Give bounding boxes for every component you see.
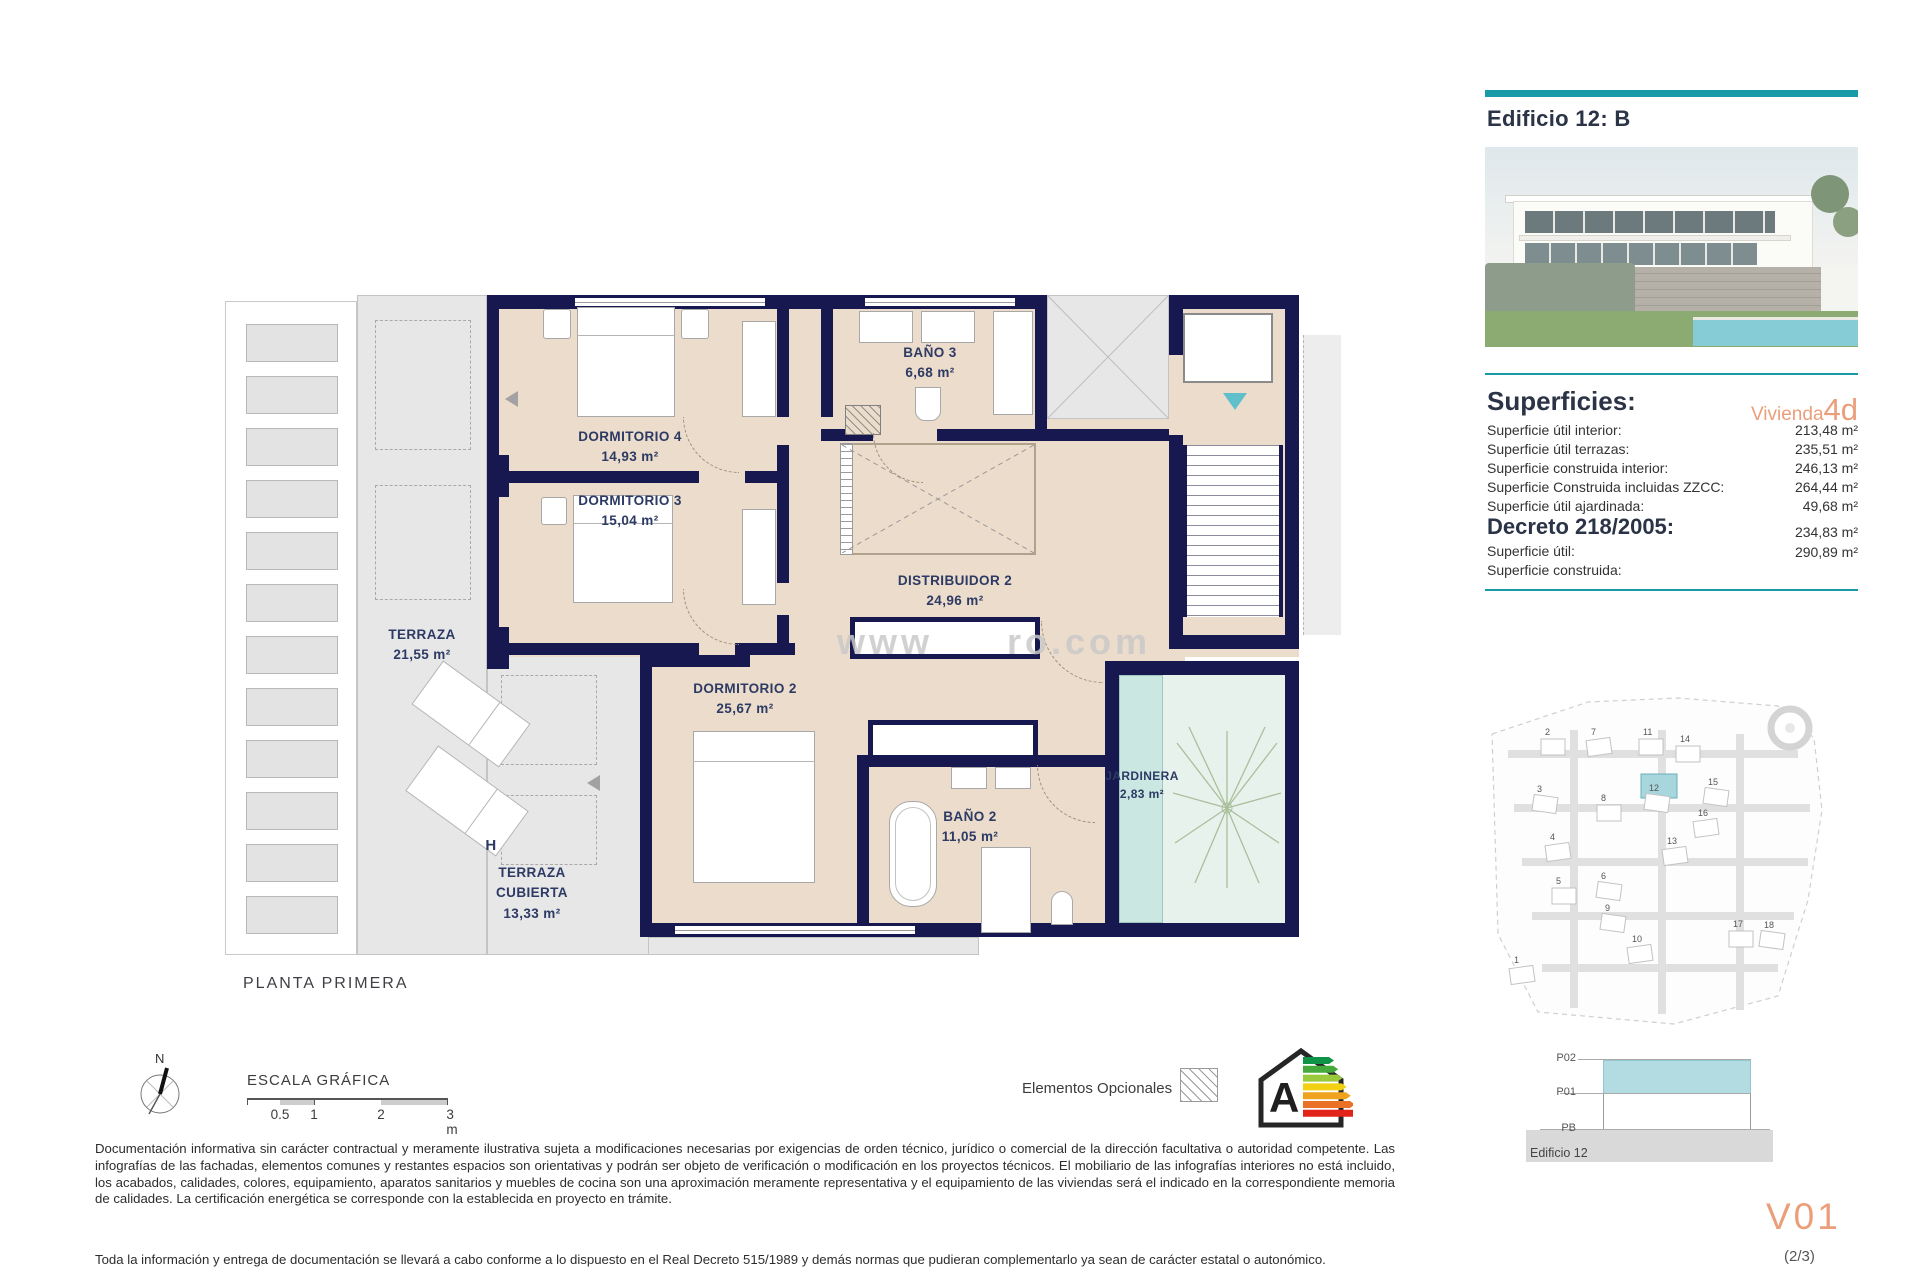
site-plot-number: 13 <box>1667 836 1677 846</box>
wall <box>1105 923 1299 937</box>
stair-direction-marker <box>1223 393 1247 410</box>
site-plot-number: 3 <box>1537 784 1542 794</box>
scale-tick: 2 <box>377 1107 385 1122</box>
photo-hedge <box>1485 263 1635 315</box>
wall <box>937 429 1035 441</box>
shower <box>981 847 1031 933</box>
louver-slat <box>246 324 338 362</box>
superficie-label: Superficie construida interior: <box>1487 460 1668 479</box>
site-plot-number: 18 <box>1764 920 1774 930</box>
void-cross-lines <box>1047 295 1169 419</box>
wardrobe-unit <box>850 617 1040 659</box>
optional-elements-swatch <box>1180 1068 1218 1102</box>
louver-slat <box>246 428 338 466</box>
room-name: DORMITORIO 4 <box>555 427 705 447</box>
nightstand <box>681 309 709 339</box>
nightstand <box>543 309 571 339</box>
energy-bar <box>1303 1075 1342 1082</box>
toilet <box>915 387 941 421</box>
room-area: 13,33 m² <box>473 904 591 924</box>
level-label-p01: P01 <box>1546 1086 1576 1098</box>
louver-slat <box>246 896 338 934</box>
wall <box>1035 429 1169 441</box>
level-line <box>1560 1093 1751 1094</box>
wall <box>1285 661 1299 937</box>
optional-element-hatch <box>845 405 881 435</box>
energy-rating-icon: A <box>1253 1046 1353 1130</box>
brochure-page: DORMITORIO 4 14,93 m² DORMITORIO 3 15,04… <box>0 0 1920 1280</box>
wall <box>1169 295 1183 355</box>
wall <box>640 655 652 937</box>
building-section: P02 P01 PB Edificio 12 <box>1518 1042 1808 1172</box>
floor-plan: DORMITORIO 4 14,93 m² DORMITORIO 3 15,04… <box>225 295 1340 967</box>
room-label-bano3: BAÑO 3 6,68 m² <box>865 343 995 384</box>
sink <box>995 767 1031 789</box>
room-area: 2,83 m² <box>1083 785 1201 803</box>
louver-slat <box>246 480 338 518</box>
terrace-paving-grid <box>375 320 471 450</box>
superficies-title: Superficies: <box>1487 386 1636 417</box>
room-name: DORMITORIO 3 <box>555 491 705 511</box>
header-accent-bar <box>1485 90 1858 97</box>
louver-slat <box>246 740 338 778</box>
louver-slat <box>246 844 338 882</box>
room-label-terraza: TERRAZA 21,55 m² <box>357 625 487 666</box>
wall <box>640 655 750 667</box>
room-area: 11,05 m² <box>897 827 1043 847</box>
room-label-bano2: BAÑO 2 11,05 m² <box>897 807 1043 848</box>
decreto-label-util: Superficie útil: <box>1487 543 1575 559</box>
room-area: 24,96 m² <box>855 591 1055 611</box>
louver-slat <box>246 532 338 570</box>
disclaimer-paragraph-1: Documentación informativa sin carácter c… <box>95 1141 1395 1208</box>
level-marker-icon <box>587 775 600 791</box>
level-label-pb: PB <box>1546 1122 1576 1134</box>
scale-tick: 3 m <box>446 1107 457 1137</box>
room-label-dormitorio2: DORMITORIO 2 25,67 m² <box>665 679 825 720</box>
wall <box>777 445 789 483</box>
window <box>575 298 765 306</box>
bed-pillow-line <box>693 761 815 762</box>
page-number: (2/3) <box>1784 1248 1815 1265</box>
level-label-p02: P02 <box>1546 1052 1576 1064</box>
photo-stone-wall <box>1635 267 1821 313</box>
photo-palm <box>1833 207 1858 237</box>
wall <box>821 309 833 417</box>
site-plot-number: 6 <box>1601 871 1606 881</box>
superficie-row: Superficie construida interior:246,13 m² <box>1487 460 1858 479</box>
superficie-value: 264,44 m² <box>1795 479 1858 498</box>
site-plot-number: 8 <box>1601 793 1606 803</box>
wall <box>857 765 869 923</box>
site-plot-number: 15 <box>1708 777 1718 787</box>
window <box>865 298 1015 306</box>
louver-slat <box>246 584 338 622</box>
wall <box>1169 435 1183 649</box>
wall <box>777 309 789 417</box>
wall <box>1105 661 1299 675</box>
superficie-label: Superficie Construida incluidas ZZCC: <box>1487 479 1724 498</box>
energy-bar <box>1303 1101 1353 1108</box>
h-marker: H <box>479 835 503 858</box>
wall <box>777 483 789 583</box>
bed <box>693 731 815 883</box>
bed-pillow-line <box>577 335 675 336</box>
bed <box>577 307 675 417</box>
room-area: 15,04 m² <box>555 511 705 531</box>
building-title: Edificio 12: B <box>1487 106 1631 132</box>
louver-slat <box>246 792 338 830</box>
wall <box>499 471 699 483</box>
room-name: TERRAZA <box>357 625 487 645</box>
disclaimer-paragraph-2: Toda la información y entrega de documen… <box>95 1252 1395 1269</box>
room-label-dormitorio3: DORMITORIO 3 15,04 m² <box>555 491 705 532</box>
room-name: DORMITORIO 2 <box>665 679 825 699</box>
energy-bar <box>1303 1066 1338 1073</box>
site-plot-number: 4 <box>1550 832 1555 842</box>
window <box>675 926 915 934</box>
room-name: BAÑO 3 <box>865 343 995 363</box>
room-name: JARDINERA <box>1083 767 1201 785</box>
sink <box>951 767 987 789</box>
superficie-row: Superficie Construida incluidas ZZCC:264… <box>1487 479 1858 498</box>
sink <box>921 311 975 343</box>
section-highlight-floor <box>1603 1060 1751 1094</box>
energy-bar <box>1303 1083 1347 1090</box>
energy-bar <box>1303 1092 1351 1099</box>
terrace-walkway <box>649 937 979 955</box>
level-line <box>1578 1059 1751 1060</box>
louver-slat <box>246 636 338 674</box>
void-dashed-cross <box>842 445 1034 553</box>
scale-tick: 1 <box>310 1107 318 1122</box>
wall <box>1035 295 1047 441</box>
section-caption: Edificio 12 <box>1530 1146 1588 1160</box>
superficie-row: Superficie útil terrazas:235,51 m² <box>1487 441 1858 460</box>
superficie-value: 213,48 m² <box>1795 422 1858 441</box>
room-label-dormitorio4: DORMITORIO 4 14,93 m² <box>555 427 705 468</box>
superficie-label: Superficie útil terrazas: <box>1487 441 1629 460</box>
plant-icon <box>1169 723 1285 893</box>
decreto-value-construida: 290,89 m² <box>1700 544 1858 560</box>
superficie-row: Superficie útil interior:213,48 m² <box>1487 422 1858 441</box>
site-plot-number: 9 <box>1605 903 1610 913</box>
energy-bar <box>1303 1057 1334 1064</box>
superficies-rows: Superficie útil interior:213,48 m²Superf… <box>1487 422 1858 517</box>
room-name: BAÑO 2 <box>897 807 1043 827</box>
site-plot-number: 7 <box>1591 727 1596 737</box>
wall <box>1285 295 1299 649</box>
site-plot-number: 16 <box>1698 808 1708 818</box>
wardrobe <box>742 321 776 417</box>
room-name: DISTRIBUIDOR 2 <box>855 571 1055 591</box>
room-area: 25,67 m² <box>665 699 825 719</box>
room-area: 14,93 m² <box>555 447 705 467</box>
room-area: 21,55 m² <box>357 645 487 665</box>
site-plot-number: 17 <box>1733 919 1743 929</box>
photo-slab <box>1519 235 1791 241</box>
north-label: N <box>155 1051 164 1066</box>
site-map: 123456789101112131415161718 <box>1478 690 1830 1038</box>
energy-letter: A <box>1269 1074 1299 1121</box>
louver-panel <box>225 301 357 955</box>
louver-slat <box>246 688 338 726</box>
exterior-roof-strip <box>1303 335 1341 635</box>
decreto-label-construida: Superficie construida: <box>1487 562 1622 578</box>
site-plot-number: 10 <box>1632 934 1642 944</box>
superficie-value: 246,13 m² <box>1795 460 1858 479</box>
superficies-bottom-rule <box>1485 589 1858 591</box>
site-plot-number: 11 <box>1643 727 1652 737</box>
superficies-top-rule <box>1485 373 1858 375</box>
north-arrow-icon: N <box>133 1050 187 1124</box>
optional-elements-label: Elementos Opcionales <box>1022 1080 1172 1097</box>
plan-title: PLANTA PRIMERA <box>243 975 409 993</box>
site-plot-number: 1 <box>1514 955 1519 965</box>
sink <box>859 311 913 343</box>
superficie-value: 49,68 m² <box>1803 498 1858 517</box>
photo-pool <box>1693 317 1858 346</box>
louver-slat <box>246 376 338 414</box>
photo-glass-band <box>1525 243 1757 265</box>
scale-title: ESCALA GRÁFICA <box>247 1072 390 1089</box>
wardrobe <box>742 509 776 605</box>
wall <box>499 643 699 655</box>
superficie-label: Superficie útil interior: <box>1487 422 1622 441</box>
energy-bar <box>1303 1110 1353 1117</box>
superficie-value: 235,51 m² <box>1795 441 1858 460</box>
room-label-jardinera: JARDINERA 2,83 m² <box>1083 767 1201 803</box>
photo-glass-band <box>1525 211 1775 233</box>
site-plot-number: 5 <box>1556 876 1561 886</box>
decreto-value-util: 234,83 m² <box>1700 524 1858 540</box>
site-plot-number: 2 <box>1545 727 1550 737</box>
shower <box>993 311 1033 415</box>
level-marker-icon <box>505 391 518 407</box>
wall <box>1169 635 1299 649</box>
staircase <box>1183 445 1283 617</box>
room-label-distribuidor2: DISTRIBUIDOR 2 24,96 m² <box>855 571 1055 612</box>
toilet <box>1051 891 1073 925</box>
scale-bar: 0.5 1 2 3 m <box>247 1098 457 1128</box>
scale-tick: 0.5 <box>271 1107 290 1122</box>
elevator <box>1183 313 1273 383</box>
wall <box>777 615 789 655</box>
terrace-paving-grid <box>375 485 471 600</box>
decreto-title: Decreto 218/2005: <box>1487 514 1674 540</box>
sheet-code: V01 <box>1766 1196 1841 1238</box>
room-area: 6,68 m² <box>865 363 995 383</box>
room-name: TERRAZA CUBIERTA <box>473 863 591 904</box>
site-plot-number: 12 <box>1649 783 1659 793</box>
energy-bars <box>1303 1057 1353 1117</box>
site-plot-number: 14 <box>1680 734 1690 744</box>
room-label-terraza-cubierta: TERRAZA CUBIERTA 13,33 m² <box>473 863 591 924</box>
villa-photo <box>1485 147 1858 347</box>
